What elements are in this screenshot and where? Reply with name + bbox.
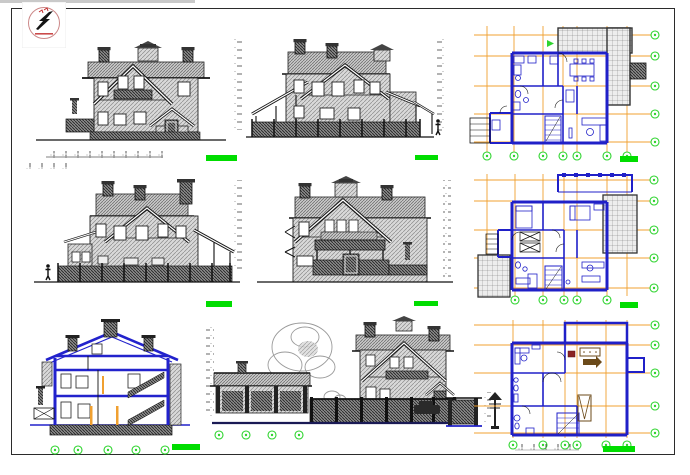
roof-outline xyxy=(565,323,627,343)
level-marks xyxy=(234,180,242,272)
walls xyxy=(55,358,168,425)
brand-logo xyxy=(22,2,66,48)
house-front xyxy=(36,41,226,140)
chimney xyxy=(180,182,192,204)
chimney xyxy=(326,43,339,58)
base-fence xyxy=(58,266,232,282)
vent xyxy=(98,256,108,264)
opening xyxy=(76,376,88,388)
window xyxy=(96,224,106,237)
chimney xyxy=(299,183,312,198)
furniture xyxy=(514,345,540,434)
human-figure xyxy=(46,264,51,280)
window xyxy=(297,256,313,266)
cabinet xyxy=(568,351,575,357)
door-frame xyxy=(90,406,93,425)
flue xyxy=(38,388,43,405)
window xyxy=(118,76,128,89)
house-side xyxy=(246,39,441,137)
garage xyxy=(210,361,312,413)
window xyxy=(82,252,90,262)
door-swings xyxy=(500,53,567,113)
pilaster xyxy=(42,362,52,386)
balcony-rail xyxy=(114,90,152,99)
section-structure xyxy=(30,319,190,435)
window xyxy=(134,76,144,89)
house-side xyxy=(34,179,240,282)
roof-band xyxy=(88,62,204,78)
arrow-marker xyxy=(583,356,602,368)
window xyxy=(348,108,360,120)
window xyxy=(176,226,186,238)
window xyxy=(294,80,304,93)
window xyxy=(158,224,168,237)
axis-markers xyxy=(51,446,169,454)
chimney xyxy=(144,338,153,351)
chimney xyxy=(98,47,111,62)
garage-roof xyxy=(214,373,310,386)
window xyxy=(294,106,304,118)
foundation xyxy=(50,425,172,435)
wood-details xyxy=(583,351,602,368)
window xyxy=(312,82,324,96)
panel-floor-plan-attic xyxy=(462,318,686,460)
flue xyxy=(405,244,410,260)
window xyxy=(354,80,364,93)
cupola xyxy=(138,48,158,61)
door-frame xyxy=(116,406,119,425)
gate-post xyxy=(448,398,452,426)
window xyxy=(337,220,346,232)
terrace-rail xyxy=(389,265,427,275)
level-marks-right xyxy=(436,36,444,132)
cupola xyxy=(374,50,390,61)
axis-markers xyxy=(509,321,659,449)
window xyxy=(366,387,376,399)
balcony-top xyxy=(558,175,632,192)
north-arrow xyxy=(547,40,554,47)
window xyxy=(366,355,375,366)
walls xyxy=(498,202,607,290)
window xyxy=(72,252,80,262)
furniture xyxy=(492,56,607,141)
stair-flight xyxy=(128,400,164,426)
bay xyxy=(222,391,243,411)
terrace-fence xyxy=(252,122,420,137)
opening xyxy=(61,402,71,418)
panel-yard-elevation xyxy=(210,315,460,445)
panel-floor-plan-ground xyxy=(462,20,686,170)
window xyxy=(390,357,399,368)
chimney xyxy=(428,326,441,341)
flue xyxy=(72,100,77,114)
house-behind xyxy=(348,316,456,410)
vent xyxy=(152,258,164,265)
window xyxy=(114,114,126,125)
window xyxy=(136,226,148,240)
window xyxy=(349,220,358,232)
panel-floor-plan-first xyxy=(462,170,686,315)
base-skirt xyxy=(90,132,200,140)
pilaster xyxy=(170,364,181,425)
walls xyxy=(490,53,607,143)
floor-slabs xyxy=(55,356,168,396)
window xyxy=(134,112,146,124)
window xyxy=(404,357,413,368)
logo-caption-line xyxy=(35,33,53,35)
level-marks-left xyxy=(234,38,242,130)
chimney xyxy=(182,47,195,62)
drawing-sheet xyxy=(0,0,690,475)
opening xyxy=(78,404,90,418)
car xyxy=(414,405,440,414)
window xyxy=(98,112,108,125)
cupola xyxy=(335,183,357,197)
opening xyxy=(128,374,140,388)
balcony-rail xyxy=(315,240,385,250)
furniture xyxy=(516,204,605,288)
fence xyxy=(310,397,456,423)
terrace xyxy=(558,28,632,105)
balcony-rail xyxy=(386,371,428,379)
cupola xyxy=(396,321,412,331)
chimney xyxy=(68,338,77,351)
window xyxy=(178,82,190,96)
door-frame xyxy=(102,376,104,394)
axis-markers xyxy=(215,431,303,439)
chimney xyxy=(294,39,307,54)
window xyxy=(114,226,126,240)
attic-opening xyxy=(92,344,102,354)
chimney xyxy=(238,363,246,373)
chimney xyxy=(364,322,377,337)
window xyxy=(370,82,380,94)
bay xyxy=(251,391,272,411)
axis-grid xyxy=(474,320,650,438)
chimney xyxy=(134,185,147,200)
house-rear xyxy=(257,176,453,282)
window xyxy=(325,220,334,232)
level-marks xyxy=(443,180,451,278)
panel-cross-section xyxy=(28,318,223,460)
window xyxy=(332,82,344,96)
panel-side-elevation-right xyxy=(228,22,450,167)
window xyxy=(98,82,108,96)
opening xyxy=(61,374,71,388)
panel-rear-elevation xyxy=(255,168,465,313)
chimney xyxy=(104,322,117,337)
terrace-rail xyxy=(66,119,94,132)
balcony xyxy=(630,63,646,79)
window xyxy=(299,222,309,236)
bay xyxy=(280,391,301,411)
roof-terrace-left xyxy=(478,255,510,297)
chimney xyxy=(102,181,115,196)
panel-side-elevation-left xyxy=(28,168,248,313)
vent xyxy=(124,258,138,265)
chimney xyxy=(381,185,394,200)
window xyxy=(320,108,334,119)
